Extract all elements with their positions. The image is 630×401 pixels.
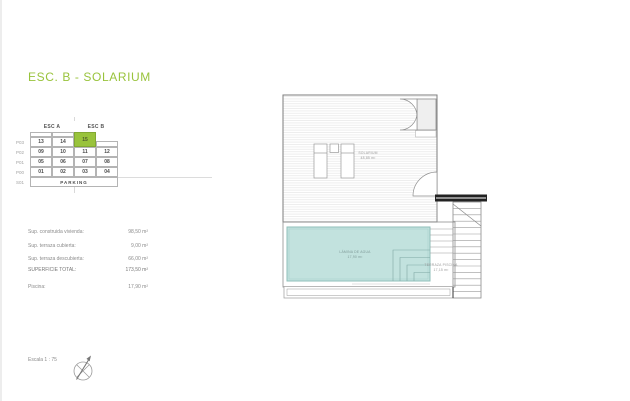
- solarium-area-label: 48,85 m²: [361, 156, 377, 160]
- pool-terrace-area-label: 17,15 m²: [434, 268, 450, 272]
- staircase: [453, 202, 481, 298]
- pergola-beam: [435, 195, 487, 202]
- sun-lounger: [314, 144, 327, 178]
- pool-label: LÁMINA DE AGUA: [339, 250, 371, 254]
- pool-area-label: 17,90 m²: [348, 255, 364, 259]
- roof-access-shaft: [416, 99, 437, 137]
- side-table: [330, 144, 339, 153]
- solarium-label: SOLARIUM: [358, 151, 377, 155]
- intermediate-steps: [430, 229, 453, 253]
- planter-strip: [284, 287, 453, 299]
- sun-lounger: [341, 144, 354, 178]
- floor-plan: SOLARIUM 48,85 m² LÁMINA DE AGUA 17,90 m…: [0, 0, 630, 401]
